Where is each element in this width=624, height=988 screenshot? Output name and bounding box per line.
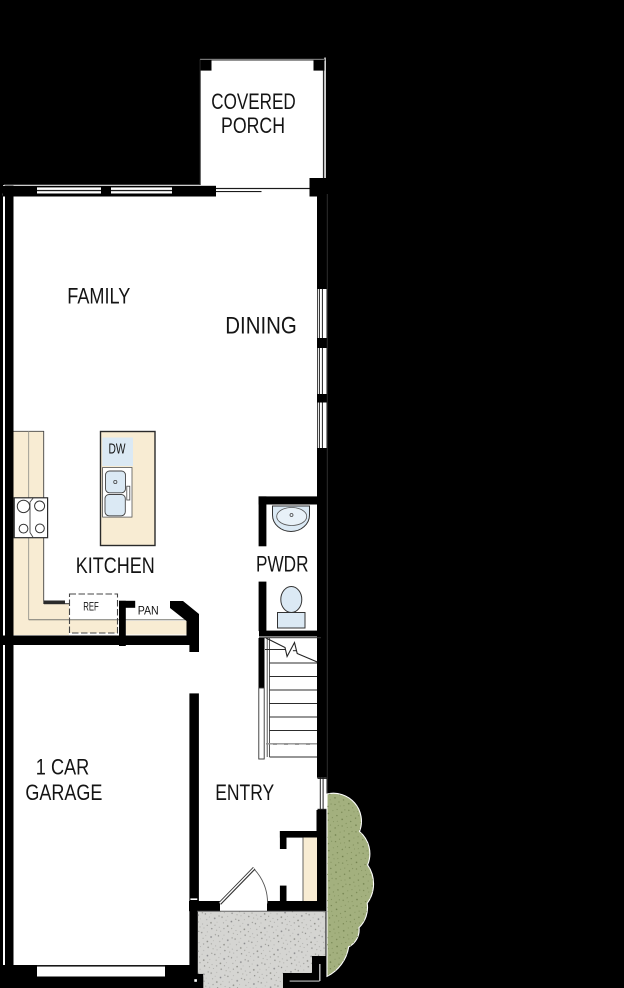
svg-text:REF: REF xyxy=(83,601,99,613)
svg-text:ENTRY: ENTRY xyxy=(215,780,274,805)
svg-text:PORCH: PORCH xyxy=(221,113,285,138)
svg-text:KITCHEN: KITCHEN xyxy=(76,553,155,578)
svg-text:COVERED: COVERED xyxy=(211,89,296,114)
svg-text:GARAGE: GARAGE xyxy=(25,780,102,805)
svg-text:FAMILY: FAMILY xyxy=(67,283,130,308)
svg-text:DW: DW xyxy=(109,442,126,458)
svg-text:DINING: DINING xyxy=(225,313,296,340)
svg-text:PAN: PAN xyxy=(138,605,159,617)
svg-text:PWDR: PWDR xyxy=(256,551,309,576)
svg-text:1 CAR: 1 CAR xyxy=(36,755,90,780)
